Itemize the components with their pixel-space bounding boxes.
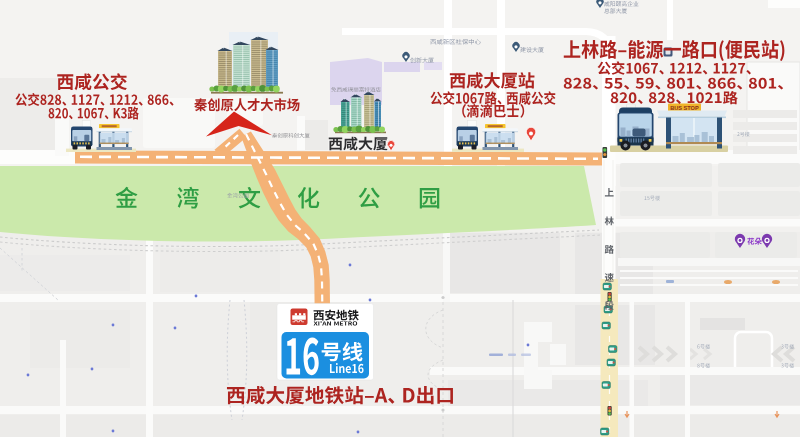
svg-text:BUS STOP: BUS STOP — [670, 105, 699, 111]
